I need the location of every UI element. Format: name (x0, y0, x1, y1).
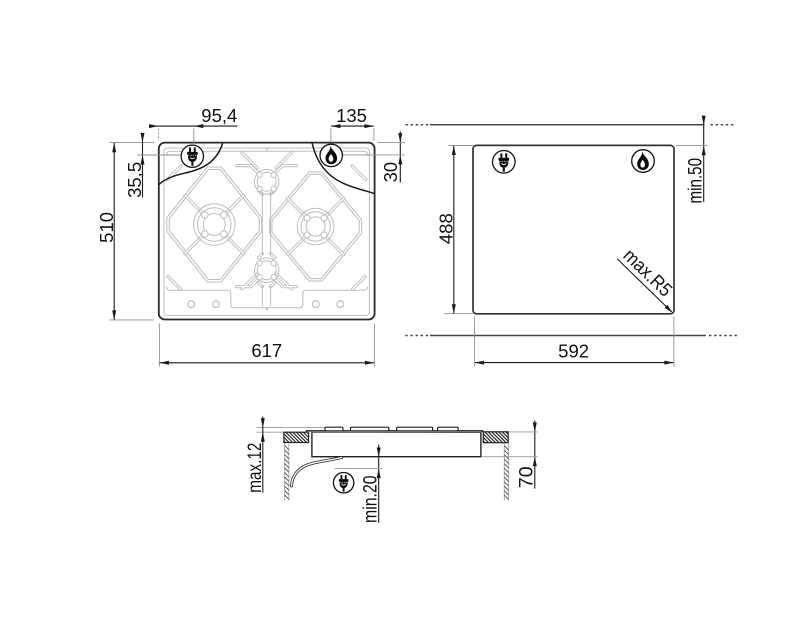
svg-text:617: 617 (251, 340, 282, 361)
svg-text:70: 70 (515, 466, 537, 488)
svg-text:min.50: min.50 (685, 158, 706, 204)
svg-text:592: 592 (558, 341, 589, 362)
svg-text:30: 30 (380, 162, 401, 183)
svg-text:35,5: 35,5 (124, 162, 145, 198)
svg-text:510: 510 (96, 212, 117, 243)
svg-text:488: 488 (435, 213, 456, 244)
svg-text:95,4: 95,4 (201, 105, 237, 126)
svg-text:max.12: max.12 (245, 443, 266, 493)
svg-text:135: 135 (336, 105, 367, 126)
svg-text:min.20: min.20 (360, 475, 381, 523)
